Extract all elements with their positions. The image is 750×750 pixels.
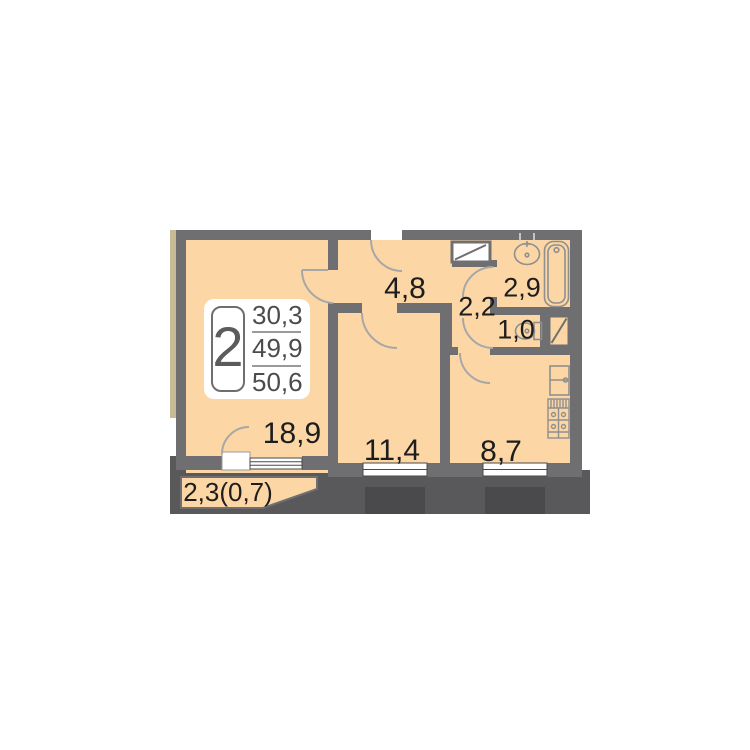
window-bay <box>485 487 545 514</box>
total-area-value: 50,6 <box>252 368 303 397</box>
living-room-window <box>250 458 302 469</box>
apartment-floor-plan: 2 30,3 49,9 50,6 18,9 11,4 8,7 4,8 2,2 2… <box>0 0 750 750</box>
bathroom-area-label: 2,9 <box>503 275 541 302</box>
rooms-count: 2 <box>212 319 243 375</box>
kitchen-area-label: 8,7 <box>480 437 522 467</box>
toilet-area-label: 1,0 <box>497 317 535 344</box>
hallway-area-label: 4,8 <box>384 274 426 304</box>
balcony-door <box>222 452 250 470</box>
usable-area-value: 49,9 <box>252 334 303 363</box>
facade-strip <box>170 230 176 418</box>
bedroom-area-label: 11,4 <box>364 436 420 466</box>
living-area-value: 30,3 <box>252 301 303 330</box>
unit-info-card: 2 30,3 49,9 50,6 <box>204 299 310 399</box>
floor-plan-svg <box>0 0 750 750</box>
areas-column: 30,3 49,9 50,6 <box>252 301 303 397</box>
living-room-area-label: 18,9 <box>263 419 321 449</box>
vent-shaft-icon <box>452 242 490 262</box>
duct-shaft-icon <box>549 316 569 346</box>
window-bay <box>365 487 425 514</box>
balcony-area-label: 2,3(0,7) <box>183 479 273 505</box>
corridor-area-label: 2,2 <box>458 294 496 321</box>
rooms-count-box: 2 <box>211 306 245 392</box>
